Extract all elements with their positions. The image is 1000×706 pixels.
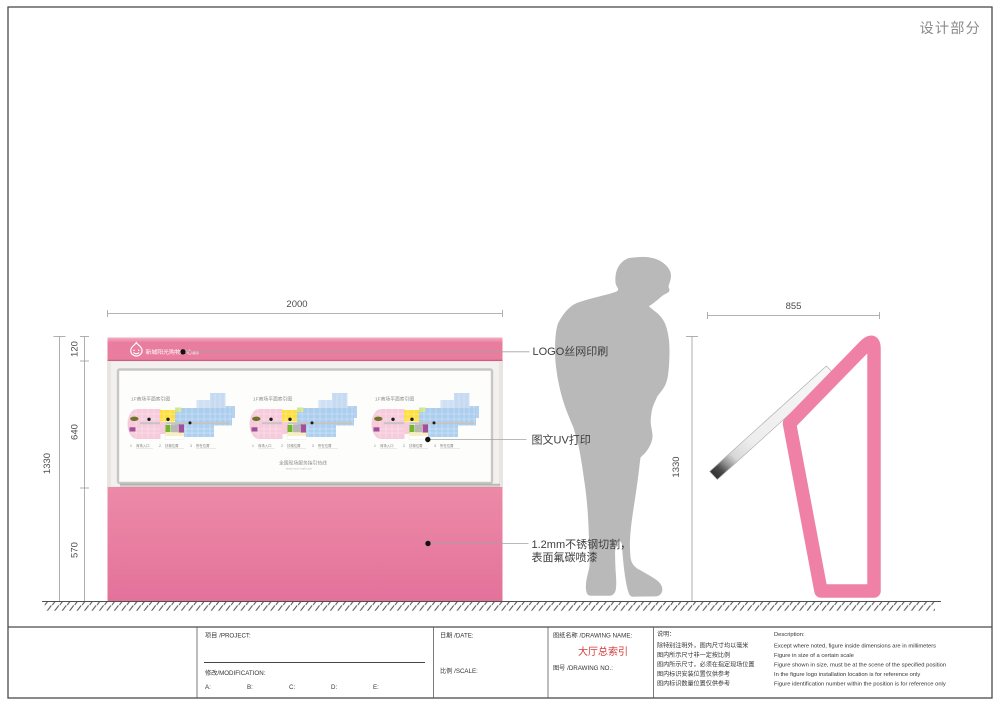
svg-text:图内所示尺寸非一定按比例: 图内所示尺寸非一定按比例 xyxy=(657,651,730,659)
svg-text:比例 /SCALE:: 比例 /SCALE: xyxy=(440,667,478,675)
svg-text:640: 640 xyxy=(70,424,81,440)
svg-text:修改/MODIFICATION:: 修改/MODIFICATION: xyxy=(205,669,266,677)
svg-text:E:: E: xyxy=(373,684,379,691)
svg-text:855: 855 xyxy=(786,301,802,312)
svg-text:Description:: Description: xyxy=(774,632,805,638)
svg-text:120: 120 xyxy=(70,341,81,357)
svg-text:LOGO丝网印刷: LOGO丝网印刷 xyxy=(533,345,609,358)
svg-text:Figure shown in size, must be: Figure shown in size, must be at the sce… xyxy=(774,663,946,669)
svg-text:设计部分: 设计部分 xyxy=(919,21,981,37)
svg-text:A:: A: xyxy=(205,684,211,691)
svg-text:图内标识安装位置仅供参考: 图内标识安装位置仅供参考 xyxy=(657,670,730,678)
svg-text:全国现场服务指引热线: 全国现场服务指引热线 xyxy=(279,460,327,467)
svg-text:图内标识数量位置仅供参考: 图内标识数量位置仅供参考 xyxy=(657,680,730,688)
svg-text:图纸名称 /DRAWING NAME:: 图纸名称 /DRAWING NAME: xyxy=(553,632,632,640)
svg-text:In the figure logo installatio: In the figure logo installation location… xyxy=(774,672,920,678)
svg-text:www.xxxx-mall.com: www.xxxx-mall.com xyxy=(286,467,313,471)
svg-text:表面氟碳喷漆: 表面氟碳喷漆 xyxy=(532,550,598,564)
svg-text:Figure in size of a certain sc: Figure in size of a certain scale xyxy=(774,653,854,659)
svg-text:大厅总索引: 大厅总索引 xyxy=(578,645,628,658)
svg-text:C:: C: xyxy=(289,684,295,691)
svg-text:图内所示尺寸，必须在指定现场位置: 图内所示尺寸，必须在指定现场位置 xyxy=(657,661,755,669)
svg-text:项目 /PROJECT:: 项目 /PROJECT: xyxy=(205,633,251,640)
svg-text:1.2mm不锈钢切割，: 1.2mm不锈钢切割， xyxy=(532,537,632,551)
svg-text:日期 /DATE:: 日期 /DATE: xyxy=(440,632,474,640)
svg-text:Except where noted, figure ins: Except where noted, figure inside dimens… xyxy=(774,644,936,650)
svg-text:D:: D: xyxy=(331,684,337,691)
svg-text:2000: 2000 xyxy=(286,299,307,310)
svg-text:1330: 1330 xyxy=(42,453,53,474)
svg-text:1330: 1330 xyxy=(671,456,682,477)
svg-text:说明：: 说明： xyxy=(657,630,675,638)
svg-text:图号 /DRAWING NO.:: 图号 /DRAWING NO.: xyxy=(553,665,613,672)
svg-text:图文UV打印: 图文UV打印 xyxy=(532,433,591,447)
svg-text:除特别注明外，图内尺寸均以毫米: 除特别注明外，图内尺寸均以毫米 xyxy=(657,642,748,650)
svg-text:570: 570 xyxy=(70,542,81,558)
svg-text:B:: B: xyxy=(247,684,253,691)
svg-text:Figure identification number w: Figure identification number within the … xyxy=(774,682,946,688)
